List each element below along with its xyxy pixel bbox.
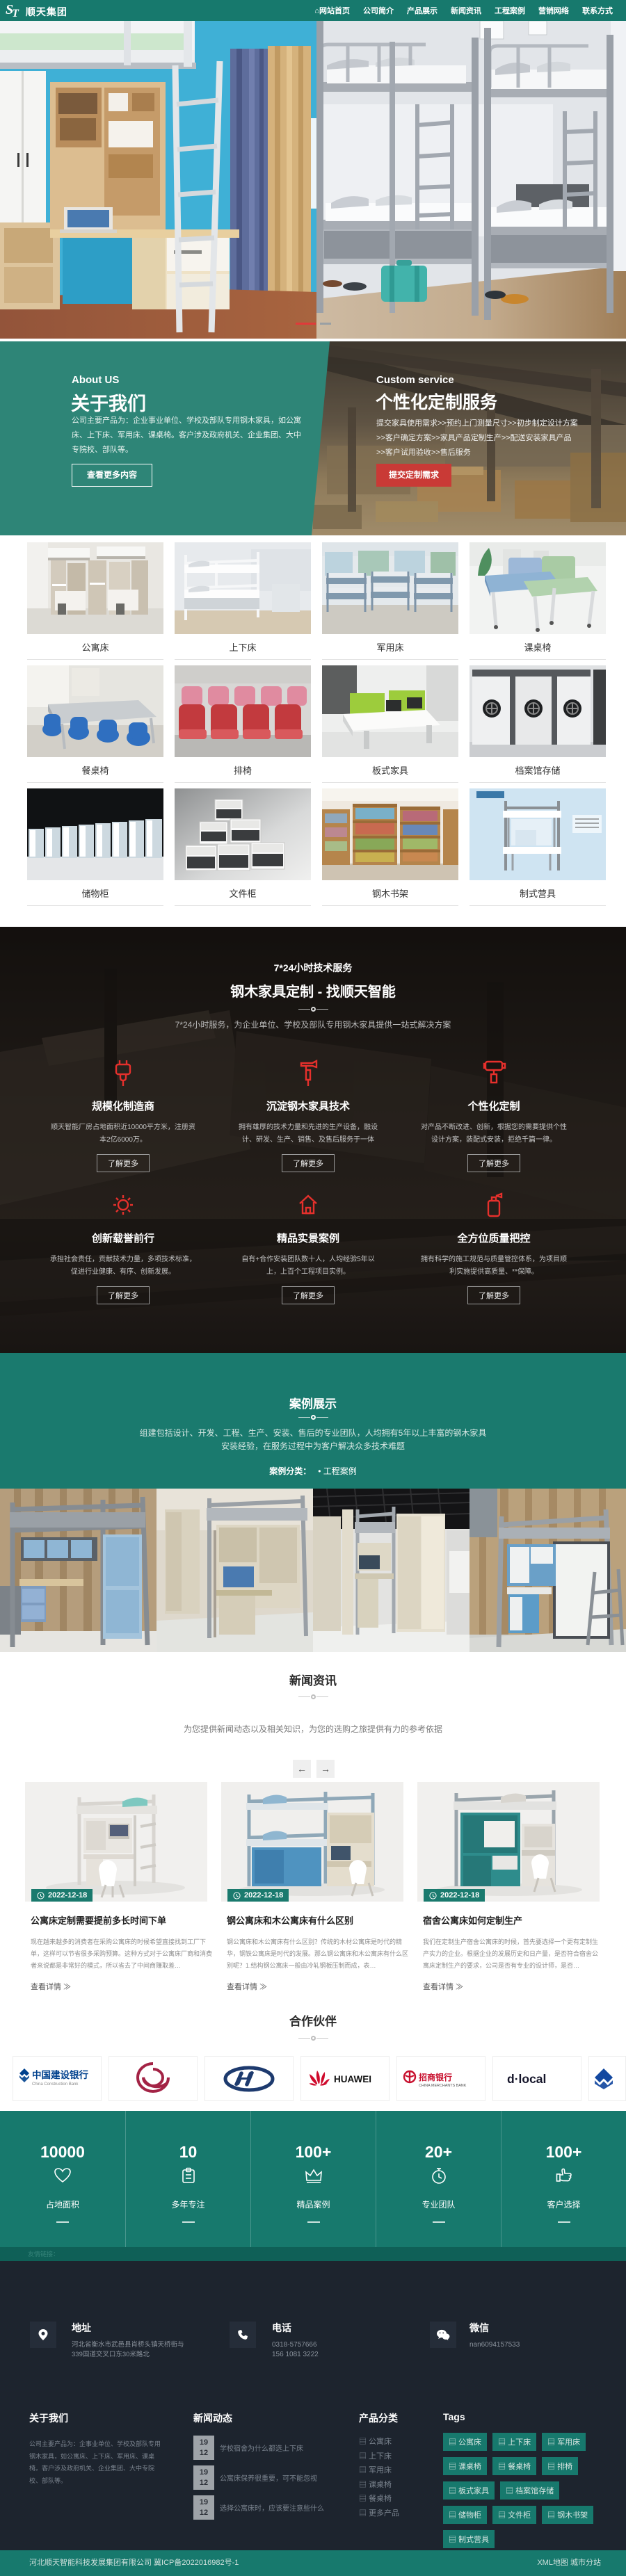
svg-text:CHINA MERCHANTS BANK: CHINA MERCHANTS BANK <box>419 2084 467 2088</box>
svg-text:招商银行: 招商银行 <box>419 2072 452 2082</box>
svg-text:China Construction Bank: China Construction Bank <box>32 2082 79 2087</box>
svg-text:中国建设银行: 中国建设银行 <box>32 2069 88 2080</box>
svg-text:d·local: d·local <box>507 2072 546 2086</box>
svg-text:HUAWEI: HUAWEI <box>334 2074 371 2084</box>
